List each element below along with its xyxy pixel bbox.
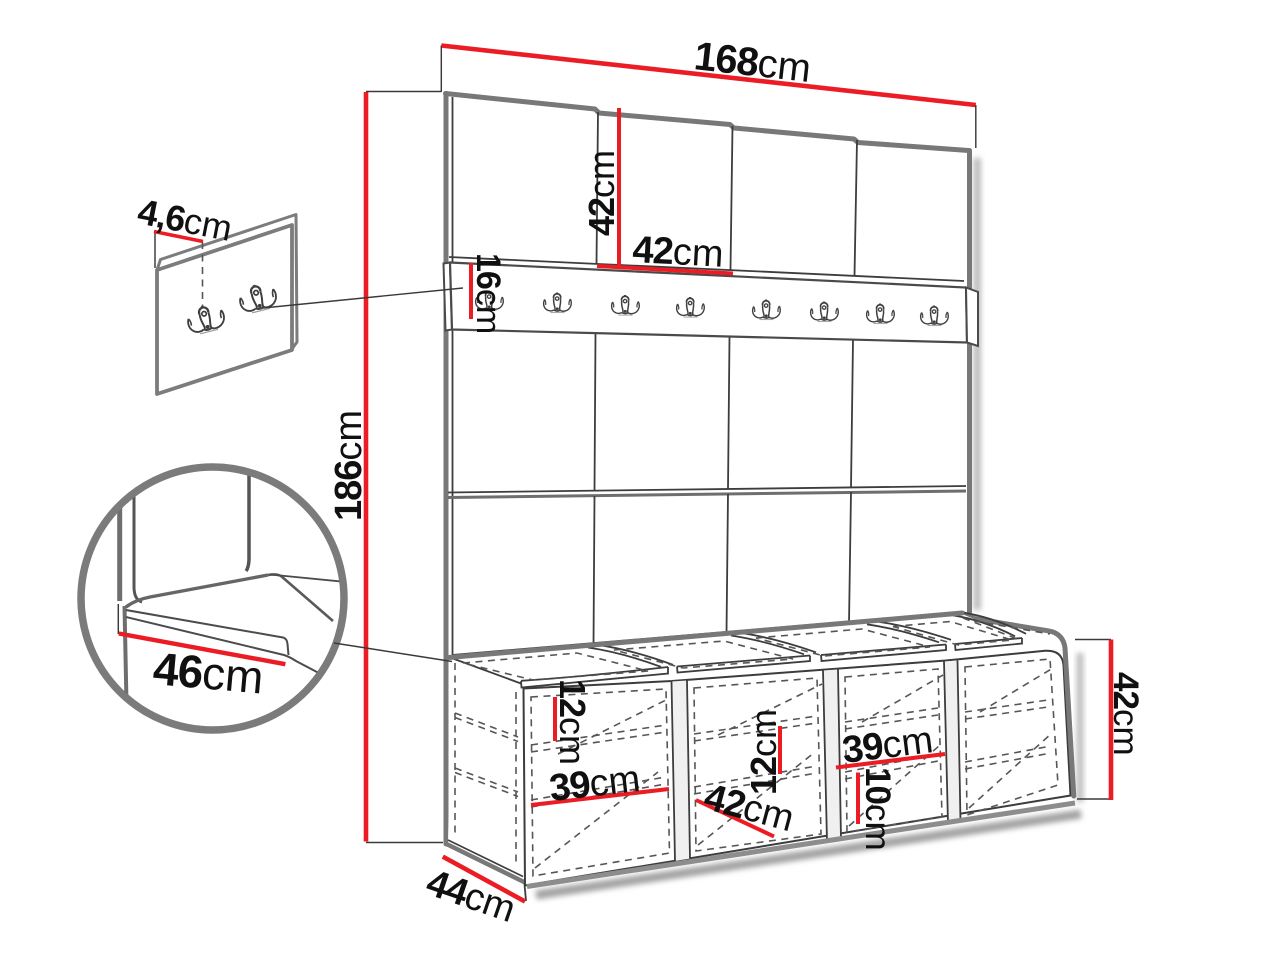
svg-text:46cm: 46cm: [151, 642, 266, 703]
svg-text:12cm: 12cm: [743, 709, 784, 795]
svg-text:42cm: 42cm: [581, 150, 622, 236]
svg-text:16cm: 16cm: [469, 253, 507, 334]
svg-text:186cm: 186cm: [328, 410, 370, 521]
svg-text:168cm: 168cm: [692, 34, 813, 91]
svg-text:10cm: 10cm: [858, 767, 897, 851]
svg-text:4,6cm: 4,6cm: [134, 191, 235, 249]
svg-text:12cm: 12cm: [552, 679, 593, 765]
svg-text:42cm: 42cm: [632, 229, 725, 276]
svg-text:42cm: 42cm: [1106, 672, 1145, 756]
